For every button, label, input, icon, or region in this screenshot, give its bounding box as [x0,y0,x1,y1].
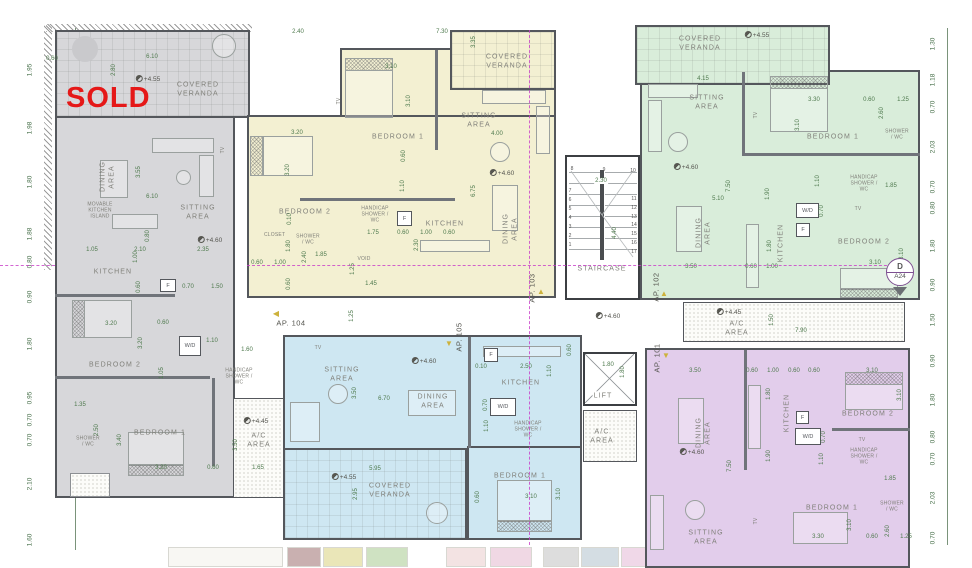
interior-wall [212,378,215,466]
level-marker-icon [136,75,143,82]
dim-label: 2.40 [302,251,308,263]
fridge-box: F [397,211,412,226]
stair-step-number: 4 [569,215,572,221]
room-label-bedroom1: BEDROOM 1 [488,471,552,480]
entrance-arrow-icon: ▼ [662,352,670,360]
stair-step-number: 7 [569,188,572,194]
dim-label: 0.70 [819,205,825,217]
washer-box: W/D [795,428,821,445]
dim-label: 2.03 [930,492,937,505]
dim-label: 0.60 [866,534,878,540]
room-label-bedroom1: BEDROOM 1 [368,132,428,141]
level-marker-icon [717,308,724,315]
level-value: +4.55 [340,474,356,481]
stair-step-number: 9 [603,167,606,173]
dim-label: 3.30 [812,534,824,540]
room-label-veranda: COVERED VERANDA [673,35,727,54]
dim-label: 1.60 [241,347,253,353]
tv-label: TV [754,518,760,525]
bed-pillow-icon [840,288,898,298]
room-label-sitting: SITTING AREA [683,529,729,548]
dim-label: 2.60 [879,107,885,119]
interior-wall [55,376,210,379]
dim-label: 0.10 [475,364,487,370]
dim-label: 1.00 [133,251,139,263]
dim-label: 1.10 [547,365,553,377]
stair-step-number: 13 [631,214,637,220]
dim-label: 2.50 [94,424,100,436]
dim-label: 0.80 [930,431,937,444]
fridge-label: F [403,216,406,222]
interior-wall [300,198,455,201]
room-label-dining: DINING AREA [695,218,714,248]
interior-wall [742,72,745,156]
section-marker-sheet: A24 [894,273,906,281]
dim-label: 5.95 [369,466,381,472]
dim-label: 0.60 [863,97,875,103]
stair-step-number: 17 [631,249,637,255]
washer-label: W/D [498,404,509,410]
dim-label: 1.10 [206,338,218,344]
apartment-label-105: AP. 105 [455,322,464,351]
dim-label: 2.10 [27,478,34,491]
dim-label: 2.03 [930,141,937,154]
dim-label: 0.60 [788,368,800,374]
level-marker: +4.60 [198,236,222,244]
dim-label: 3.20 [155,465,167,471]
coffee-table-icon [176,170,191,185]
section-line-horizontal [0,265,55,266]
spiral-stair-icon [426,502,448,524]
stair-step-number: 11 [631,196,636,202]
dim-label: 6.70 [378,396,390,402]
level-value: +4.45 [252,418,268,425]
dim-label: 1.80 [930,394,937,407]
coffee-table-icon [685,500,705,520]
dim-label: 1.35 [74,402,86,408]
room-label-handicap-wc: HANDICAP SHOWER / WC [512,421,544,438]
interior-wall [468,337,471,448]
dim-label: 0.70 [930,453,937,466]
bed-pillow-icon [250,136,263,176]
sofa-icon [199,155,214,197]
room-label-dining: DINING AREA [411,393,455,412]
room-label-dining: DINING AREA [99,162,118,192]
bed-pillow-icon [770,76,828,89]
dim-label: 1.00 [767,368,779,374]
room-label-shower-wc: SHOWER / WC [884,129,910,141]
interior-wall [435,50,438,150]
dim-label: 1.00 [420,230,432,236]
dim-label: 0.70 [27,414,34,427]
dim-label: 2.30 [594,178,608,184]
interior-wall [742,153,920,156]
room-label-closet: CLOSET [264,233,284,239]
fridge-box: F [160,279,176,292]
room-label-kitchen-island: MOVABLE KITCHEN ISLAND [79,202,121,219]
room-label-bedroom2: BEDROOM 2 [832,237,896,246]
dim-label: 1.75 [367,230,379,236]
dim-label: 1.80 [27,338,34,351]
section-marker-arrow-icon [893,287,907,296]
room-label-bedroom2: BEDROOM 2 [85,360,145,369]
dim-label: 0.10 [287,213,293,225]
dim-label: 4.15 [697,76,709,82]
floor-thumbnail [168,547,283,567]
room-label-ac-area: A/C AREA [723,320,751,339]
room-label-kitchen: KITCHEN [426,219,464,228]
room-label-sitting: SITTING AREA [319,366,365,385]
room-label-veranda: COVERED VERANDA [171,81,225,100]
stair-step-number: 6 [569,197,572,203]
apartment-label-104: AP. 104 [276,319,305,328]
dim-label: 1.80 [766,388,772,400]
dim-label: 6.10 [146,54,158,60]
dim-label: 1.80 [27,176,34,189]
room-label-bedroom1: BEDROOM 1 [130,428,190,437]
dim-label: 3.50 [233,439,239,451]
dim-label: 0.70 [930,101,937,114]
dim-label: 0.60 [136,281,142,293]
dim-label: 0.80 [27,256,34,269]
compass-icon [212,34,236,58]
dim-label: 1.88 [27,228,34,241]
kitchen-counter-icon [748,385,761,449]
section-line-horizontal [247,265,907,266]
dim-label: 1.80 [930,240,937,253]
dim-label: 1.85 [885,183,897,189]
tv-label: TV [855,207,862,213]
tv-label: TV [754,112,760,119]
level-marker-icon [596,312,603,319]
dim-label: 6.10 [146,194,158,200]
room-label-handicap-wc: HANDICAP SHOWER / WC [359,206,391,223]
entrance-porch [70,473,110,497]
stair-step-number: 15 [631,231,637,237]
dim-label: 0.60 [808,368,820,374]
dim-label: 1.30 [930,38,937,51]
dim-label: 0.60 [746,368,758,374]
dim-label: 7.90 [795,328,807,334]
room-label-veranda: COVERED VERANDA [363,482,417,501]
level-value: +4.55 [753,32,769,39]
staircase [565,155,640,300]
level-marker: +4.45 [244,417,268,425]
sofa-icon [650,495,664,550]
dim-label: 1.65 [252,465,264,471]
entrance-arrow-icon: ▼ [445,340,453,348]
dim-label: 3.20 [291,130,303,136]
level-value: +4.60 [682,164,698,171]
section-marker: D A24 [886,258,914,286]
level-marker: +4.55 [745,31,769,39]
dim-label: 2.40 [292,29,304,35]
tv-label: TV [315,346,322,352]
stair-step-number: 8 [571,166,574,172]
dim-label: 7.50 [727,460,733,472]
dim-label: 1.18 [930,74,937,87]
dim-label: 2.30 [414,239,420,251]
dim-label: 6.75 [471,185,477,197]
room-label-handicap-wc: HANDICAP SHOWER / WC [223,368,255,385]
room-label-void: VOID [353,257,375,263]
dim-label: 0.60 [443,230,455,236]
dim-label: 7.30 [436,29,448,35]
dim-label: 1.10 [815,175,821,187]
sold-stamp: SOLD [66,84,151,113]
dim-label: 0.80 [145,230,151,242]
coffee-table-icon [328,384,348,404]
dim-label: 3.20 [105,321,117,327]
dim-label: 0.60 [157,320,169,326]
coffee-table-icon [490,142,510,162]
dim-label: 0.80 [930,202,937,215]
floor-thumbnail [366,547,408,567]
dim-label: 0.60 [567,344,573,356]
floor-thumbnail [490,547,532,567]
room-label-kitchen: KITCHEN [502,378,540,387]
room-label-sitting: SITTING AREA [684,94,730,113]
level-marker-icon [745,31,752,38]
room-label-kitchen: KITCHEN [776,224,785,262]
dim-label: 0.70 [930,181,937,194]
tv-label: TV [221,147,227,154]
washer-label: W/D [803,434,814,440]
washer-label: W/D [802,208,813,214]
floor-thumbnail [446,547,486,567]
sofa-icon [536,106,550,154]
level-marker-icon [490,169,497,176]
sofa-icon [482,90,546,104]
dim-label: 3.10 [897,389,903,401]
dim-label: 3.10 [556,488,562,500]
dim-label: 0.70 [821,431,827,443]
level-marker: +4.60 [412,357,436,365]
dim-label: 0.60 [46,56,58,62]
fridge-label: F [801,227,804,233]
stair-step-number: 1 [569,242,572,248]
section-marker-letter: D [887,262,913,273]
dim-label: 3.20 [285,164,291,176]
room-label-ac-area: A/C AREA [245,432,273,451]
dim-label: 1.90 [765,188,771,200]
level-marker: +4.60 [674,163,698,171]
fridge-box: F [796,223,810,237]
dim-label: 2.35 [197,247,209,253]
bed-icon [497,480,552,522]
level-marker: +4.45 [717,308,741,316]
level-marker: +4.60 [596,312,620,320]
entrance-arrow-icon: ◀ [273,310,279,318]
entrance-arrow-icon: ▲ [537,288,545,296]
level-marker-icon [680,448,687,455]
dim-label: 1.10 [484,420,490,432]
level-marker: +4.55 [332,473,356,481]
room-label-kitchen: KITCHEN [94,267,132,276]
dim-label: 4.40 [612,227,618,239]
sofa-icon [290,402,320,442]
dim-label: 2.95 [353,488,359,500]
stair-step-number: 10 [630,168,636,174]
dim-label: 0.90 [930,355,937,368]
floor-thumbnail [287,547,321,567]
room-label-shower-wc: SHOWER / WC [75,436,101,448]
floor-thumbnail [543,547,579,567]
dim-label: 1.60 [27,534,34,547]
fridge-box: F [796,411,809,424]
tree-icon [72,36,98,62]
dim-label: 1.80 [767,240,773,252]
dim-label: 3.50 [689,368,701,374]
stair-step-number: 3 [569,224,572,230]
floor-thumbnail [323,547,363,567]
dim-label: 0.60 [401,150,407,162]
dim-label: 7.50 [726,180,732,192]
dim-label: 0.70 [483,399,489,411]
stair-step-number: 5 [569,206,572,212]
dim-label: 1.50 [930,314,937,327]
level-marker-icon [198,236,205,243]
room-label-shower-wc: SHOWER / WC [295,234,321,246]
dim-label: 1.90 [766,450,772,462]
dim-label: 1.80 [601,362,615,368]
dim-label: 1.45 [365,281,377,287]
entrance-arrow-icon: ▲ [660,290,668,298]
washer-box: W/D [796,203,819,218]
dim-label: 1.95 [27,64,34,77]
dim-label: 0.60 [286,278,292,290]
dim-label: 3.30 [808,97,820,103]
section-line-vertical [529,30,530,545]
bed-icon [84,300,132,338]
dim-label: 2.80 [111,64,117,76]
room-label-sitting: SITTING AREA [456,112,502,131]
dim-label: 4.00 [491,131,503,137]
dim-label: 0.60 [397,230,409,236]
interior-wall [55,294,175,297]
bed-pillow-icon [497,520,552,532]
stair-step-number: 2 [569,233,572,239]
dim-label: 5.10 [712,196,724,202]
dim-label: 3.10 [795,119,801,131]
room-label-dining: DINING AREA [502,214,521,244]
dim-label: 0.60 [475,491,481,503]
dim-label: 1.25 [897,97,909,103]
dim-label: 1.98 [27,122,34,135]
fridge-box: F [484,348,498,362]
kitchen-counter-icon [420,240,490,252]
room-label-kitchen: KITCHEN [782,394,791,432]
level-value: +4.60 [604,313,620,320]
interior-wall [832,428,910,431]
dim-label: 1.25 [349,310,355,322]
level-marker-icon [332,473,339,480]
dim-label: 1.50 [211,284,223,290]
dim-label: 1.05 [159,367,165,379]
dim-label: 3.20 [138,337,144,349]
room-label-sitting: SITTING AREA [175,204,221,223]
fridge-label: F [801,415,804,421]
dim-label: 3.50 [352,387,358,399]
dim-label: 0.90 [930,279,937,292]
stair-step-number: 14 [631,222,637,228]
sofa-icon [152,138,214,153]
tv-label: TV [859,438,866,444]
dim-label: 3.10 [866,368,878,374]
dim-label: 2.60 [885,525,891,537]
dim-label: 1.10 [819,453,825,465]
fridge-label: F [166,283,169,289]
room-label-shower-wc: SHOWER / WC [879,501,905,513]
level-value: +4.60 [420,358,436,365]
room-label-veranda: COVERED VERANDA [480,53,534,72]
level-marker-icon [412,357,419,364]
dim-label: 1.85 [884,476,896,482]
dim-label: 3.10 [406,95,412,107]
stair-step-number: 12 [631,205,637,211]
dim-label: 0.90 [27,291,34,304]
room-label-bedroom1: BEDROOM 1 [801,132,865,141]
fridge-label: F [489,352,492,358]
bed-pillow-icon [72,300,85,338]
apartment-label-101: AP. 101 [653,343,662,372]
washer-box: W/D [490,398,516,416]
room-label-ac-area: A/C AREA [588,428,616,447]
dim-label: 0.70 [930,532,937,545]
dim-label: 0.70 [27,434,34,447]
dim-label: 1.50 [769,314,775,326]
dim-label: 1.80 [620,366,626,378]
dim-label: 3.10 [385,64,397,70]
dim-label: 3.40 [117,434,123,446]
dim-label: 3.10 [525,494,537,500]
level-value: +4.60 [498,170,514,177]
room-label-bedroom2: BEDROOM 2 [275,207,335,216]
floor-plan: 1.95 1.98 1.80 1.88 0.80 0.50 0.90 1.80 … [0,0,972,568]
level-marker-icon [674,163,681,170]
dim-label: 1.85 [315,252,327,258]
dim-label: 1.10 [400,180,406,192]
bed-icon [845,384,903,410]
washer-box: W/D [179,336,201,356]
dim-label: 3.10 [847,519,853,531]
level-value: +4.60 [688,449,704,456]
room-label-dining: DINING AREA [695,418,714,448]
floor-thumbnail [581,547,619,567]
room-label-bedroom2: BEDROOM 2 [836,409,900,418]
dim-label: 0.95 [27,392,34,405]
coffee-table-icon [668,132,688,152]
kitchen-counter-icon [746,224,759,288]
right-dimension-rail [947,28,948,545]
level-marker: +4.60 [680,448,704,456]
tv-label: TV [337,98,343,105]
level-value: +4.60 [206,237,222,244]
level-marker: +4.60 [490,169,514,177]
bed-icon [345,70,393,118]
dim-label: 0.60 [207,465,219,471]
sofa-icon [648,100,662,152]
room-label-handicap-wc: HANDICAP SHOWER / WC [848,175,880,192]
dim-label: 1.80 [286,240,292,252]
room-label-bedroom1: BEDROOM 1 [800,503,864,512]
dim-label: 1.25 [900,534,912,540]
room-label-lift: LIFT [593,391,614,400]
level-marker-icon [244,417,251,424]
dim-label: 3.35 [471,36,477,48]
level-value: +4.45 [725,309,741,316]
dim-label: 0.70 [182,284,194,290]
